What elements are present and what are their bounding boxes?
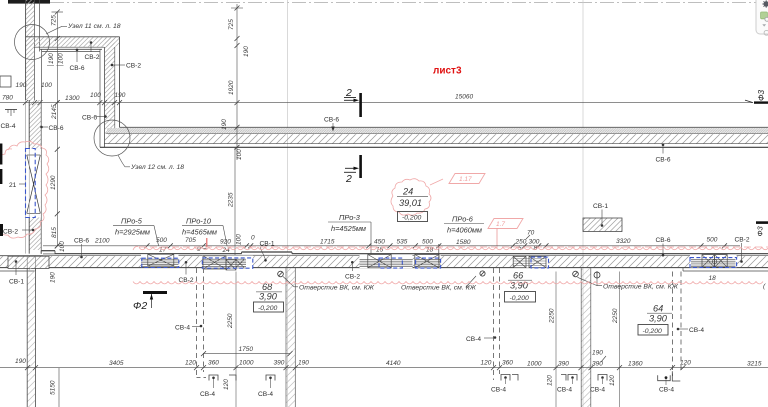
svg-text:-0,200: -0,200 [510, 295, 529, 302]
svg-text:190: 190 [50, 272, 57, 283]
svg-text:СВ-6: СВ-6 [70, 65, 85, 72]
svg-text:СВ-6: СВ-6 [656, 157, 671, 164]
svg-text:66: 66 [513, 271, 524, 281]
svg-text:120: 120 [609, 375, 616, 386]
svg-text:2235: 2235 [228, 192, 235, 208]
svg-text:h=4565мм: h=4565мм [182, 228, 217, 237]
svg-text:Ф2: Ф2 [133, 300, 147, 312]
svg-text:СВ-4: СВ-4 [689, 327, 704, 334]
svg-text:Узел 11 см. л. 18: Узел 11 см. л. 18 [67, 23, 121, 30]
svg-text:360: 360 [502, 360, 513, 367]
svg-text:500: 500 [422, 239, 433, 246]
svg-text:ПРо-5: ПРо-5 [121, 217, 143, 226]
svg-text:4140: 4140 [386, 360, 401, 367]
svg-text:1000: 1000 [239, 360, 254, 367]
svg-text:СВ-4: СВ-4 [659, 387, 674, 394]
svg-text:2: 2 [345, 87, 352, 99]
svg-text:СВ-1: СВ-1 [260, 241, 275, 248]
svg-text:-0,200: -0,200 [643, 328, 662, 335]
svg-text:780: 780 [2, 95, 13, 102]
svg-text:190: 190 [16, 82, 27, 89]
svg-text:h=2925мм: h=2925мм [115, 228, 150, 237]
svg-text:0: 0 [251, 235, 255, 242]
svg-text:СВ-2: СВ-2 [3, 229, 18, 236]
svg-text:СВ-4: СВ-4 [557, 387, 572, 394]
svg-text:СВ-6: СВ-6 [74, 238, 89, 245]
svg-text:СВ-4: СВ-4 [590, 387, 605, 394]
svg-text:СВ-1: СВ-1 [593, 203, 608, 210]
svg-text:Узел 12 см. л. 18: Узел 12 см. л. 18 [130, 164, 184, 171]
svg-text:СВ-4: СВ-4 [175, 325, 190, 332]
svg-text:СВ-4: СВ-4 [466, 336, 481, 343]
svg-text:21: 21 [9, 182, 17, 189]
svg-text:39,01: 39,01 [399, 198, 422, 208]
svg-text:120: 120 [185, 360, 196, 367]
svg-text:1750: 1750 [239, 346, 254, 353]
svg-text:70: 70 [527, 230, 535, 237]
svg-text:СВ-2: СВ-2 [126, 63, 141, 70]
svg-text:120: 120 [481, 360, 492, 367]
svg-text:Отверстие ВК, см. КЖ: Отверстие ВК, см. КЖ [401, 285, 477, 292]
svg-text:100: 100 [236, 234, 243, 245]
svg-text:3,90: 3,90 [259, 292, 278, 302]
svg-text:h=4525мм: h=4525мм [331, 224, 366, 233]
svg-text:120: 120 [680, 360, 691, 367]
svg-text:500: 500 [707, 237, 718, 244]
svg-text:390: 390 [274, 360, 285, 367]
svg-text:СВ-6: СВ-6 [49, 125, 64, 132]
svg-text:ПРо-6: ПРо-6 [452, 215, 474, 224]
svg-text:2: 2 [345, 173, 352, 185]
svg-text:190: 190 [15, 358, 26, 365]
svg-text:5: 5 [518, 245, 522, 252]
svg-text:100: 100 [41, 82, 52, 89]
svg-text:1920: 1920 [228, 80, 235, 95]
svg-text:64: 64 [653, 304, 663, 314]
svg-text:Отверстие ВК, см. КЖ: Отверстие ВК, см. КЖ [603, 284, 679, 291]
svg-text:3215: 3215 [747, 361, 762, 368]
svg-text:120: 120 [223, 379, 230, 390]
svg-text:3,90: 3,90 [649, 314, 668, 324]
svg-text:-0,200: -0,200 [402, 215, 421, 222]
svg-text:ПРо-10: ПРо-10 [186, 217, 212, 226]
svg-text:100: 100 [236, 149, 243, 160]
svg-text:725: 725 [51, 15, 58, 26]
svg-text:190: 190 [48, 53, 55, 64]
svg-text:3320: 3320 [616, 238, 631, 245]
svg-text:СВ-4: СВ-4 [491, 387, 506, 394]
svg-text:СВ-2: СВ-2 [735, 237, 750, 244]
svg-text:390: 390 [558, 361, 569, 368]
svg-text:120: 120 [547, 375, 554, 386]
svg-text:лист3: лист3 [433, 66, 462, 77]
svg-text:360: 360 [208, 360, 219, 367]
svg-text:1715: 1715 [320, 239, 335, 246]
svg-text:СВ-6: СВ-6 [82, 115, 97, 122]
svg-text:2145: 2145 [51, 104, 58, 120]
svg-text:390: 390 [592, 361, 603, 368]
svg-text:1.17: 1.17 [459, 176, 472, 183]
svg-text:535: 535 [397, 239, 408, 246]
svg-text:1300: 1300 [65, 95, 80, 102]
svg-text:Ф3: Ф3 [756, 225, 765, 236]
svg-text:СВ-4: СВ-4 [1, 123, 16, 130]
svg-text:СВ-4: СВ-4 [258, 391, 273, 398]
svg-text:15060: 15060 [455, 94, 473, 101]
svg-text:СВ-2: СВ-2 [345, 274, 360, 281]
svg-text:СВ-4: СВ-4 [200, 391, 215, 398]
svg-text:24: 24 [402, 187, 413, 197]
svg-text:3405: 3405 [109, 360, 124, 367]
svg-text:1000: 1000 [527, 361, 542, 368]
svg-text:1580: 1580 [456, 239, 471, 246]
svg-text:СВ-6: СВ-6 [324, 117, 339, 124]
svg-text:2100: 2100 [94, 238, 110, 245]
svg-text:3,90: 3,90 [510, 281, 529, 291]
svg-text:Ф3: Ф3 [757, 89, 766, 101]
svg-text:2250: 2250 [227, 313, 234, 329]
svg-text:Отверстие ВК, см. КЖ: Отверстие ВК, см. КЖ [299, 284, 375, 291]
svg-text:1.7: 1.7 [496, 221, 505, 228]
svg-text:1360: 1360 [628, 361, 643, 368]
svg-text:100: 100 [90, 92, 101, 99]
svg-text:2250: 2250 [549, 308, 556, 324]
svg-text:СВ-6: СВ-6 [656, 237, 671, 244]
svg-text:18: 18 [709, 275, 717, 282]
svg-text:h=4060мм: h=4060мм [447, 226, 482, 235]
svg-text:1290: 1290 [50, 175, 57, 190]
svg-text:ПРо-3: ПРо-3 [339, 213, 361, 222]
svg-text:-0,200: -0,200 [258, 305, 277, 312]
svg-text:705: 705 [185, 237, 196, 244]
svg-text:190: 190 [298, 360, 309, 367]
svg-text:815: 815 [51, 227, 58, 238]
svg-text:190: 190 [115, 92, 126, 99]
svg-text:725: 725 [228, 19, 235, 30]
svg-text:5150: 5150 [50, 380, 57, 395]
svg-text:190: 190 [221, 119, 228, 130]
svg-text:2250: 2250 [612, 308, 619, 324]
svg-text:СВ-2: СВ-2 [85, 54, 100, 61]
svg-text:100: 100 [59, 241, 66, 252]
svg-text:190: 190 [243, 46, 250, 57]
svg-text:100: 100 [58, 53, 65, 64]
svg-text:190: 190 [592, 350, 603, 357]
svg-text:450: 450 [374, 239, 385, 246]
svg-text:СВ-1: СВ-1 [9, 279, 24, 286]
